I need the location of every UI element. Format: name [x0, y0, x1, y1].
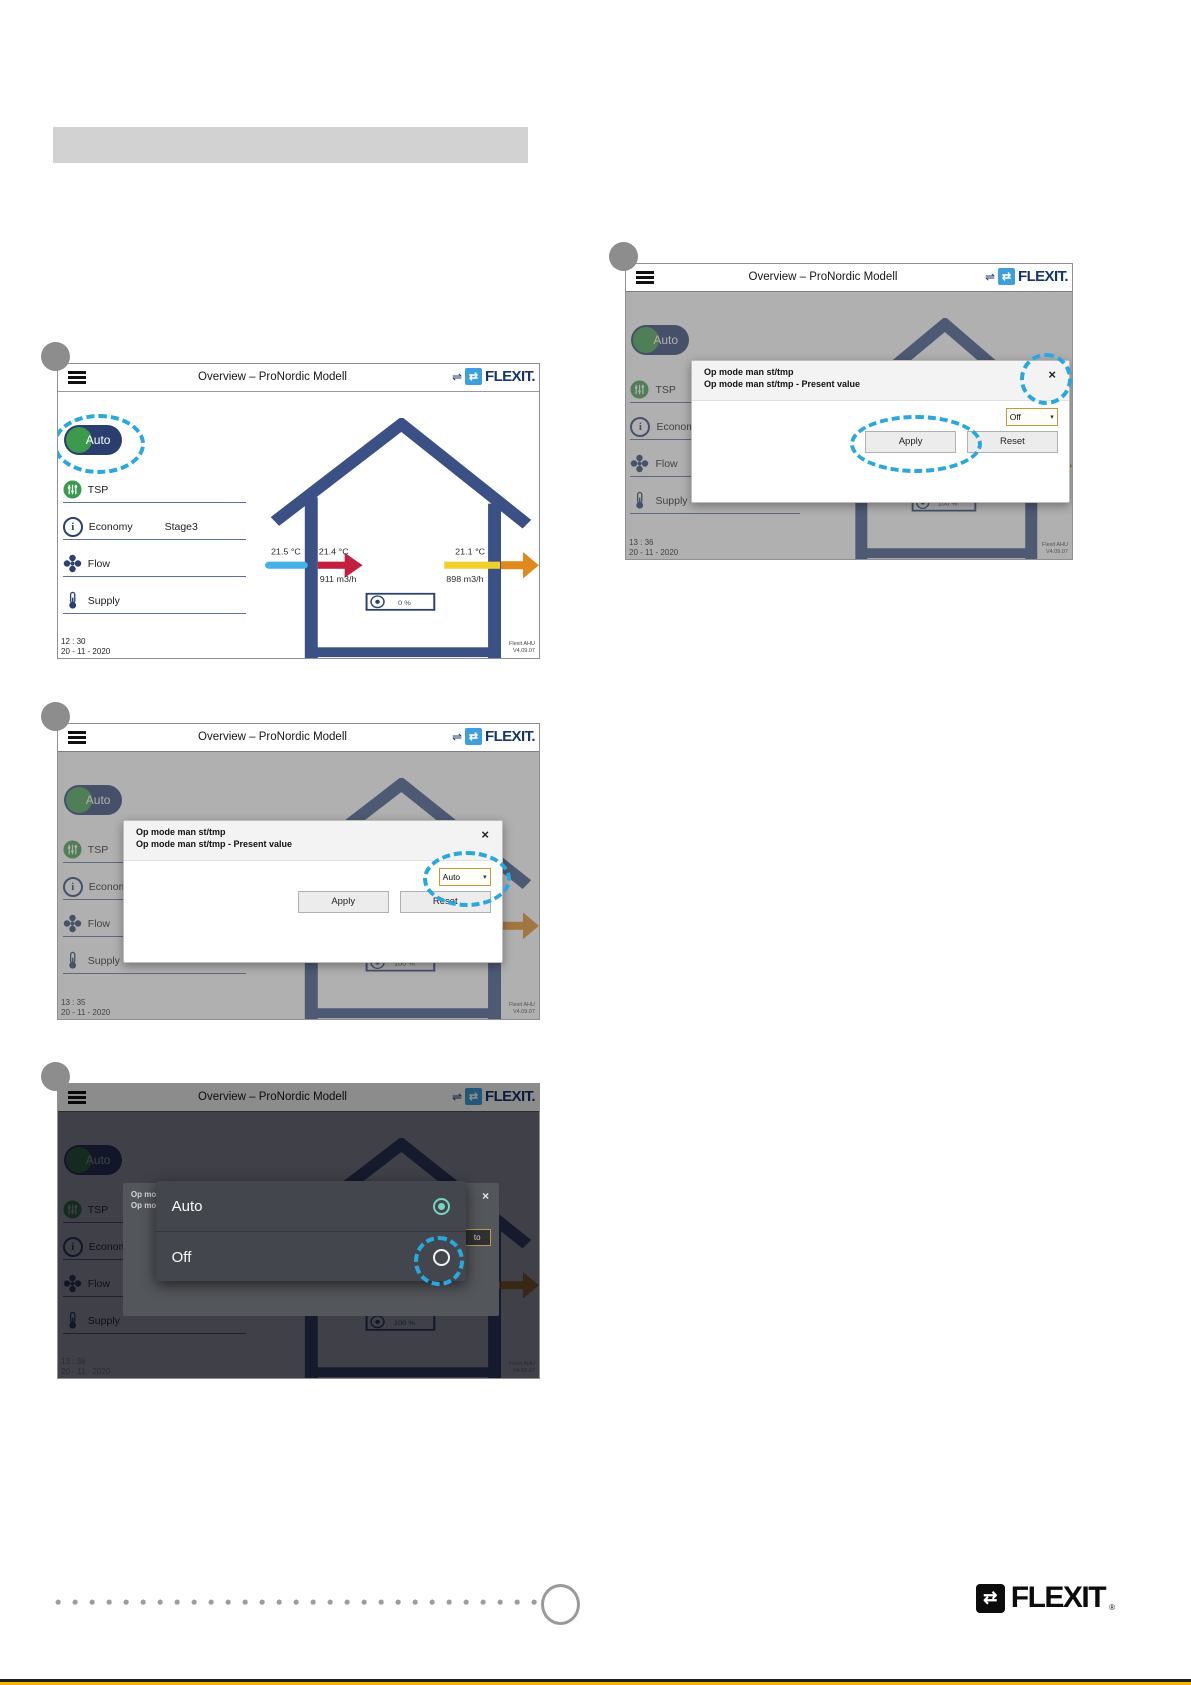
screenshot-step-3: Overview – ProNordic Modell ⇌ ⇄ FLEXIT. …	[57, 1083, 540, 1379]
registered-mark: ®	[1109, 1603, 1115, 1612]
dialog-subtitle: Op mode man st/tmp - Present value	[136, 839, 292, 849]
reset-button[interactable]: Reset	[967, 431, 1058, 453]
temp-outdoor: 21.5 °C	[271, 547, 301, 556]
manual-page: Overview – ProNordic Modell ⇌ ⇄ FLEXIT. …	[0, 0, 1191, 1685]
economy-stage-value: Stage3	[165, 521, 198, 533]
screen-time: 12 : 30	[61, 637, 85, 646]
sidebar-item-label: Flow	[88, 558, 110, 570]
dotted-divider	[55, 1599, 537, 1606]
op-mode-dialog: Op mode man st/tmp Op mode man st/tmp - …	[123, 820, 503, 963]
chevron-down-icon: ▾	[484, 1234, 488, 1242]
chevron-down-icon: ▾	[483, 873, 487, 881]
option-label: Off	[172, 1249, 192, 1266]
dialog-title: Op mode man st/tmp	[136, 827, 226, 837]
header-logo-group: ⇌ ⇄ FLEXIT.	[452, 728, 535, 745]
temp-extract: 21.1 °C	[455, 547, 485, 556]
floor	[315, 647, 492, 657]
screen-body: Auto TSP i Economy Stage3 Flow	[58, 391, 539, 658]
firmware-version: Flexit AHU V4.09.07	[509, 641, 535, 655]
op-mode-dialog: Op mode man st/tmp Op mode man st/tmp - …	[691, 360, 1070, 503]
dialog-header: Op mode man st/tmp Op mode man st/tmp - …	[692, 361, 1069, 401]
outdoor-air-arrow	[265, 562, 308, 569]
house-diagram: 21.5 °C 21.4 °C 21.1 °C 911 m3/h 898 m3/…	[257, 418, 539, 658]
supply-air-arrow-shaft	[318, 562, 346, 569]
screen-header: Overview – ProNordic Modell ⇌ ⇄ FLEXIT.	[58, 724, 539, 752]
sidebar-item-label: Economy	[89, 521, 133, 533]
device-screen: Overview – ProNordic Modell ⇌ ⇄ FLEXIT. …	[625, 263, 1073, 560]
dialog-subtitle-partial: Op mo	[131, 1201, 156, 1210]
tsp-icon	[63, 480, 82, 499]
thermometer-icon	[63, 591, 82, 610]
right-wall	[488, 504, 501, 658]
dialog-title-partial: Op mo	[131, 1190, 156, 1199]
header-logo-group: ⇌ ⇄ FLEXIT.	[985, 268, 1068, 285]
flexit-footer-logo-text: FLEXIT	[1011, 1581, 1105, 1615]
sidebar-item-flow[interactable]: Flow	[63, 551, 246, 577]
device-screen: Overview – ProNordic Modell ⇌ ⇄ FLEXIT. …	[57, 1083, 540, 1379]
flexit-footer-logo-icon: ⇄	[976, 1584, 1005, 1613]
op-mode-dropdown[interactable]: Off ▾	[1006, 408, 1058, 426]
screenshot-step-4: Overview – ProNordic Modell ⇌ ⇄ FLEXIT. …	[625, 263, 1073, 560]
screen-header: Overview – ProNordic Modell ⇌ ⇄ FLEXIT.	[626, 264, 1072, 292]
op-mode-dropdown-value: Off	[1010, 412, 1021, 422]
temp-supply: 21.4 °C	[319, 547, 349, 556]
flexit-footer-logo: ⇄ FLEXIT ®	[976, 1581, 1115, 1615]
flexit-logo-text: FLEXIT.	[485, 368, 535, 385]
dialog-header: Op mode man st/tmp Op mode man st/tmp - …	[124, 821, 502, 861]
exhaust-air-arrow-shaft	[501, 561, 526, 569]
reset-button[interactable]: Reset	[400, 891, 491, 913]
swap-arrows-icon: ⇌	[985, 271, 995, 283]
flexit-logo-text: FLEXIT.	[485, 728, 535, 745]
close-icon[interactable]: ×	[481, 828, 489, 841]
step-badge	[41, 702, 70, 731]
op-mode-dropdown[interactable]: Auto ▾	[439, 868, 491, 886]
option-label: Auto	[172, 1198, 203, 1215]
flexit-logo-text: FLEXIT.	[1018, 268, 1068, 285]
sidebar-item-label: Supply	[88, 595, 120, 607]
chevron-down-icon: ▾	[1050, 413, 1054, 421]
mode-toggle-auto[interactable]: Auto	[64, 425, 122, 455]
device-screen: Overview – ProNordic Modell ⇌ ⇄ FLEXIT. …	[57, 723, 540, 1020]
screenshot-step-2: Overview – ProNordic Modell ⇌ ⇄ FLEXIT. …	[57, 723, 540, 1020]
apply-button[interactable]: Apply	[865, 431, 956, 453]
swap-arrows-icon: ⇌	[452, 371, 462, 383]
rotor-speed-value: 0 %	[398, 599, 412, 607]
screen-date: 20 - 11 - 2020	[61, 647, 110, 656]
radio-selected-icon[interactable]	[433, 1198, 450, 1215]
swap-arrows-icon: ⇌	[452, 731, 462, 743]
sidebar-item-label: TSP	[88, 484, 108, 496]
screenshot-step-1: Overview – ProNordic Modell ⇌ ⇄ FLEXIT. …	[57, 363, 540, 659]
rotor-speed-box: 0 %	[367, 594, 435, 610]
dialog-title: Op mode man st/tmp	[704, 367, 794, 377]
step-badge	[41, 342, 70, 371]
apply-button[interactable]: Apply	[298, 891, 389, 913]
flexit-logo-icon: ⇄	[465, 368, 482, 385]
option-off[interactable]: Off	[156, 1231, 467, 1282]
flow-extract: 898 m3/h	[446, 575, 484, 584]
info-icon: i	[63, 517, 83, 537]
flow-supply: 911 m3/h	[320, 575, 357, 584]
flexit-logo-icon: ⇄	[465, 728, 482, 745]
sidebar-item-supply[interactable]: Supply	[63, 588, 246, 614]
device-screen: Overview – ProNordic Modell ⇌ ⇄ FLEXIT. …	[57, 363, 540, 659]
section-header-bar	[53, 127, 528, 163]
radio-unselected-icon[interactable]	[433, 1249, 450, 1266]
sidebar-item-tsp[interactable]: TSP	[63, 477, 246, 503]
flexit-logo-icon: ⇄	[998, 268, 1015, 285]
modal-dim-overlay-header	[58, 1084, 539, 1111]
screen-header: Overview – ProNordic Modell ⇌ ⇄ FLEXIT.	[58, 364, 539, 392]
exhaust-air-arrow-head	[523, 552, 539, 579]
close-icon[interactable]: ×	[482, 1190, 489, 1202]
page-indicator-circle	[541, 1584, 580, 1625]
sidebar-item-economy[interactable]: i Economy Stage3	[63, 514, 246, 540]
step-badge	[41, 1062, 70, 1091]
fan-icon	[63, 554, 82, 573]
option-auto[interactable]: Auto	[156, 1181, 467, 1231]
mode-toggle-label: Auto	[86, 433, 111, 447]
header-logo-group: ⇌ ⇄ FLEXIT.	[452, 368, 535, 385]
op-mode-options-popup: Auto Off	[156, 1181, 467, 1281]
dialog-subtitle: Op mode man st/tmp - Present value	[704, 379, 860, 389]
close-icon[interactable]: ×	[1048, 368, 1056, 381]
extract-air-arrow	[444, 562, 500, 569]
step-badge	[609, 242, 638, 271]
left-wall	[305, 497, 318, 658]
op-mode-dropdown-value: Auto	[443, 872, 461, 882]
